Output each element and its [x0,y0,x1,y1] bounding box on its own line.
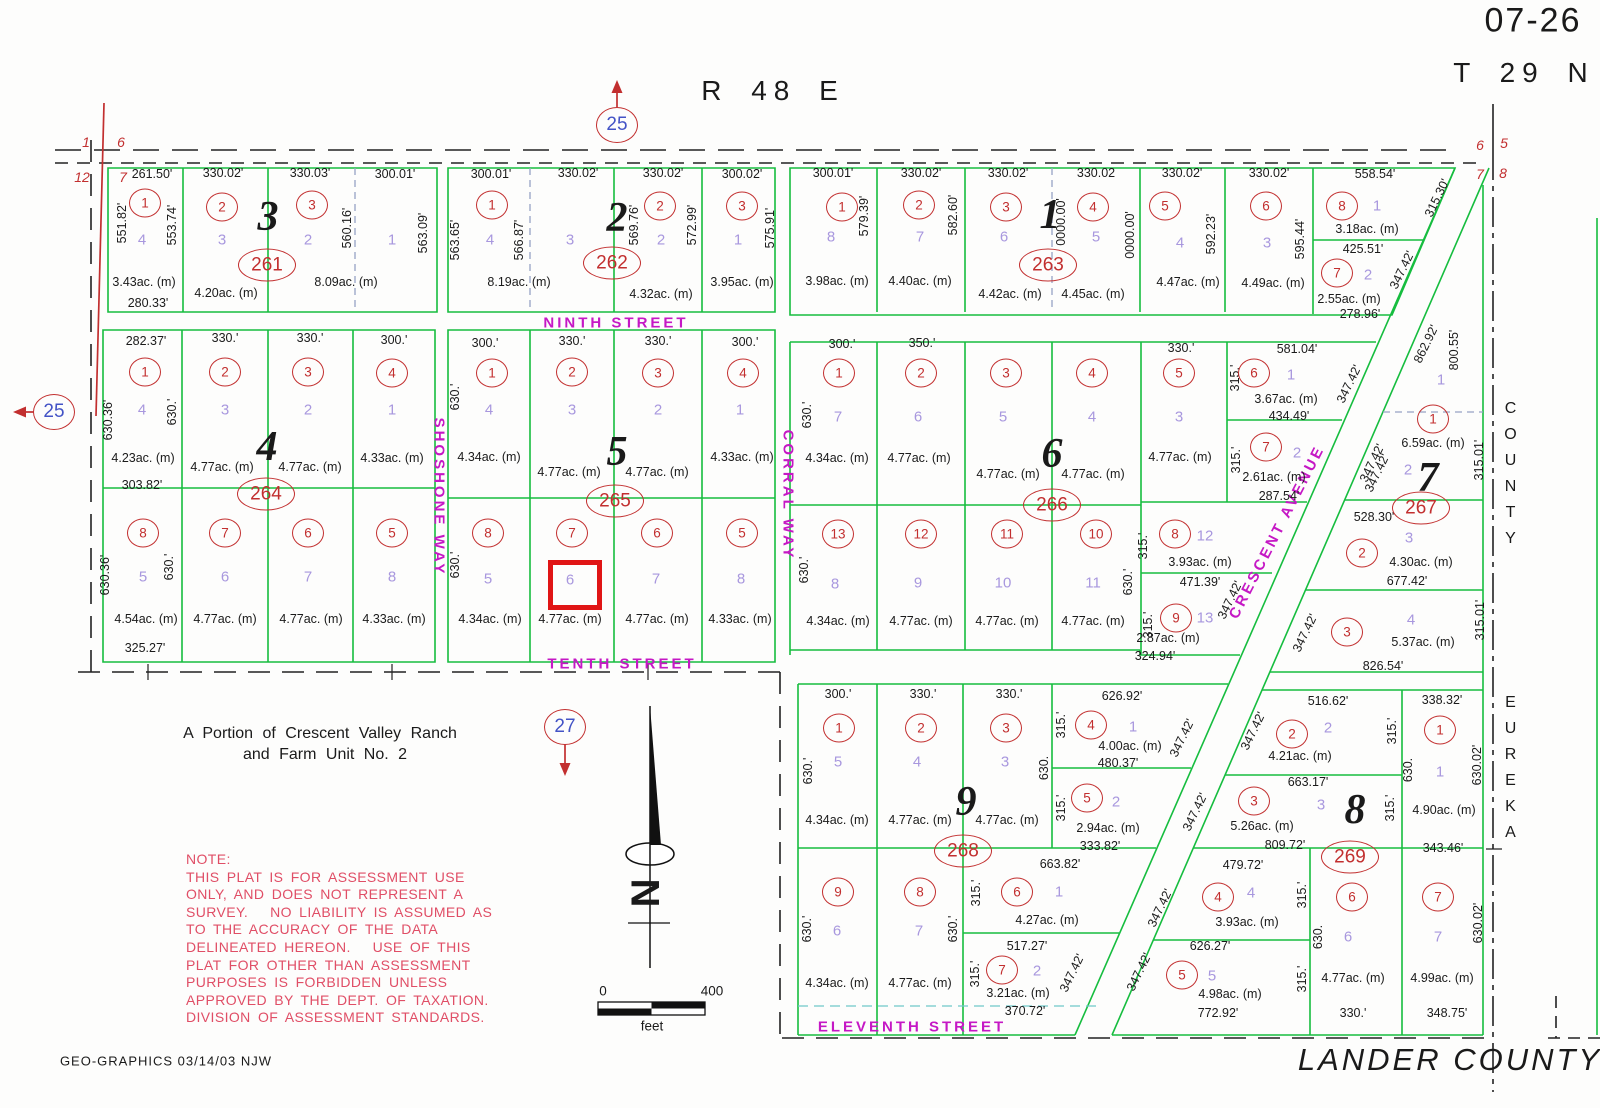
north-ref-arrow [612,80,623,93]
north-arrow [626,706,674,968]
south-ref-arrow [560,763,571,776]
target-parcel-highlight [548,560,602,610]
assessment-note: NOTE: THIS PLAT IS FOR ASSESSMENT USE ON… [186,851,492,1027]
west-ref-arrow [13,407,26,418]
plat-map: 07-26 T 29 N R 48 E LANDER COUNTY GEO-GR… [0,0,1600,1108]
scale-bar [598,1002,705,1015]
section-line-red [24,88,617,766]
